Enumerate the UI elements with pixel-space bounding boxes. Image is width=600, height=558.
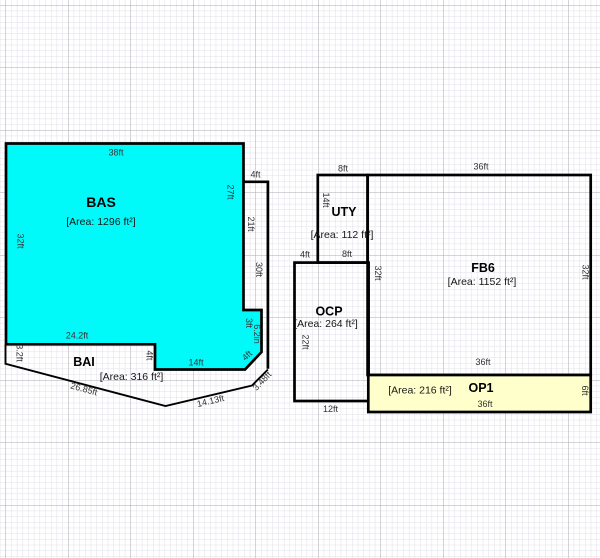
svg-text:BAI: BAI — [73, 355, 95, 369]
svg-text:21ft: 21ft — [246, 216, 256, 232]
svg-text:OCP: OCP — [315, 305, 342, 319]
svg-text:14ft: 14ft — [188, 358, 204, 368]
svg-text:32ft: 32ft — [16, 233, 26, 249]
svg-text:38ft: 38ft — [108, 148, 124, 158]
svg-text:30ft: 30ft — [254, 262, 264, 278]
svg-text:4ft: 4ft — [300, 250, 311, 260]
svg-text:[Area: 112 ft²]: [Area: 112 ft²] — [311, 229, 374, 241]
svg-text:4ft: 4ft — [144, 350, 154, 361]
svg-text:14ft: 14ft — [321, 192, 331, 208]
svg-text:8ft: 8ft — [342, 249, 353, 259]
svg-text:OP1: OP1 — [468, 381, 493, 395]
svg-text:36ft: 36ft — [477, 399, 493, 409]
svg-text:[Area: 216 ft²]: [Area: 216 ft²] — [388, 385, 452, 397]
svg-text:4ft: 4ft — [250, 170, 261, 180]
svg-text:6ft: 6ft — [580, 385, 590, 396]
svg-text:UTY: UTY — [332, 205, 358, 219]
svg-text:[Area: 1296 ft²]: [Area: 1296 ft²] — [66, 216, 136, 228]
svg-text:8ft: 8ft — [338, 164, 349, 174]
svg-text:32ft: 32ft — [581, 264, 591, 280]
svg-text:27ft: 27ft — [226, 184, 236, 200]
svg-text:BAS: BAS — [86, 194, 116, 210]
svg-text:24.2ft: 24.2ft — [66, 331, 89, 341]
svg-text:[Area: 316 ft²]: [Area: 316 ft²] — [100, 371, 164, 383]
svg-text:32ft: 32ft — [373, 265, 383, 281]
svg-text:36ft: 36ft — [475, 357, 491, 367]
svg-text:22ft: 22ft — [301, 334, 311, 350]
svg-text:12ft: 12ft — [323, 404, 339, 414]
svg-text:3.2ft: 3.2ft — [15, 344, 25, 362]
svg-text:[Area: 264 ft²]: [Area: 264 ft²] — [294, 318, 358, 330]
svg-text:36ft: 36ft — [473, 161, 489, 171]
svg-text:6.2in: 6.2in — [252, 324, 262, 344]
svg-text:FB6: FB6 — [471, 261, 495, 275]
svg-text:[Area: 1152 ft²]: [Area: 1152 ft²] — [448, 276, 517, 288]
